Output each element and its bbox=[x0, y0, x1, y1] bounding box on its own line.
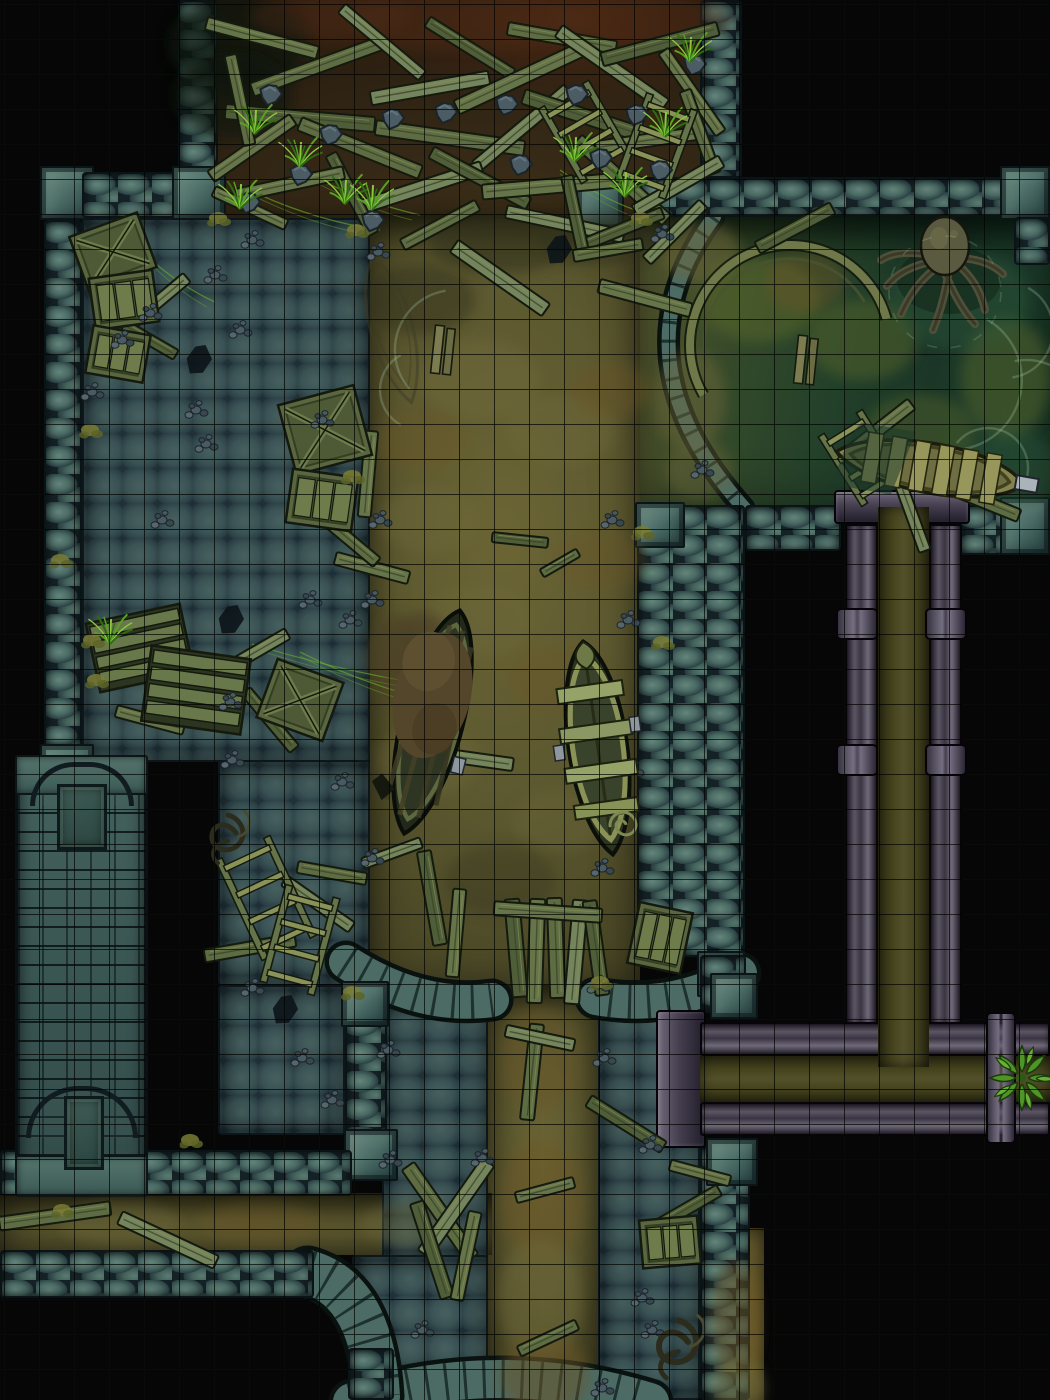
pipe-collar-1-right bbox=[925, 608, 967, 640]
pipe-collar-2-right bbox=[925, 744, 967, 776]
bridge-door-bottom bbox=[64, 1096, 104, 1170]
pipe-collar-2-left bbox=[836, 744, 878, 776]
wall-room-top bbox=[82, 172, 180, 218]
battle-map[interactable] bbox=[0, 0, 1050, 1400]
pillar-canal-left-top bbox=[341, 981, 389, 1027]
pipe-collar-1-left bbox=[836, 608, 878, 640]
wall-corridor-bottom bbox=[0, 1250, 314, 1298]
pillar-pool-top-left bbox=[576, 174, 624, 230]
bridge-door-top bbox=[57, 784, 107, 850]
pipe-vertical-sludge bbox=[878, 507, 929, 1067]
pipe-horizontal-bell bbox=[656, 1010, 706, 1148]
pillar-canal-right-top bbox=[635, 502, 685, 548]
wall-chunk-top-right bbox=[1014, 217, 1050, 265]
wall-room-left bbox=[44, 220, 82, 748]
wall-under-pool-left bbox=[745, 505, 841, 551]
pipe-horizontal-collar bbox=[986, 1012, 1016, 1144]
wall-rubble-left bbox=[178, 0, 218, 174]
wall-canal-right bbox=[637, 505, 745, 957]
pillar-pool-top-right bbox=[1000, 166, 1050, 220]
wall-bottom-left-edge bbox=[348, 1348, 394, 1400]
walls-structures-layer bbox=[0, 0, 1050, 1400]
wall-rubble-right bbox=[700, 0, 742, 178]
wall-pool-top bbox=[640, 177, 1050, 217]
pillar-top-b bbox=[172, 166, 226, 220]
pillar-under-pool-right bbox=[1000, 497, 1050, 555]
pillar-right-low-a bbox=[710, 973, 758, 1019]
pillar-right-low-b bbox=[706, 1138, 758, 1186]
pillar-canal-left-mid bbox=[344, 1129, 398, 1181]
